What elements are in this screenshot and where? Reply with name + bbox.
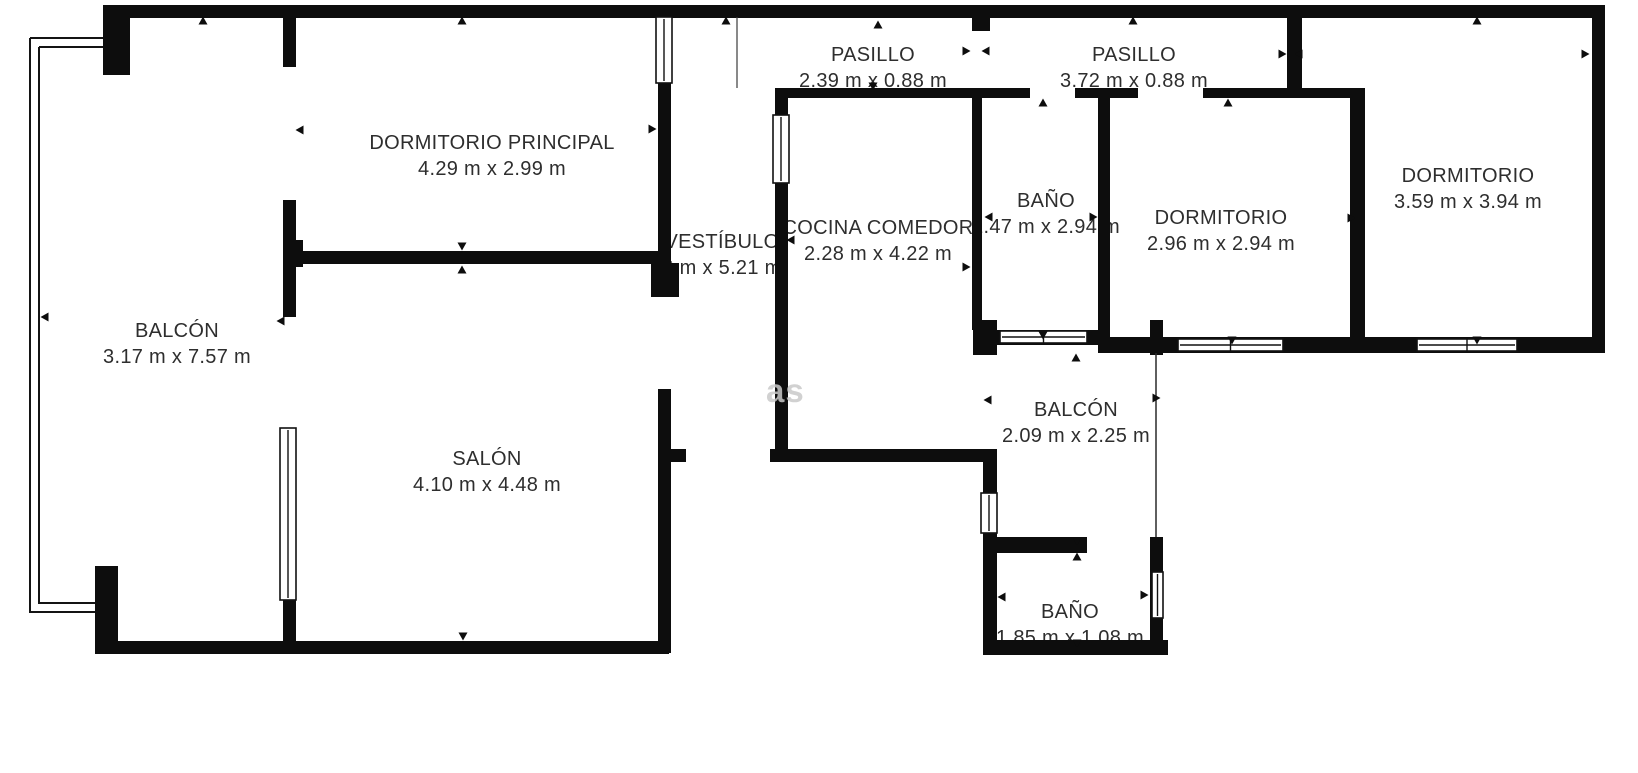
room-dims: 3.59 m x 3.94 m — [1394, 189, 1542, 215]
room-label-dormitorio-principal: DORMITORIO PRINCIPAL 4.29 m x 2.99 m — [369, 130, 614, 182]
room-name: DORMITORIO PRINCIPAL — [369, 130, 614, 156]
watermark: as — [766, 372, 805, 410]
room-dims: 3.72 m x 0.88 m — [1060, 68, 1208, 94]
dimension-arrows — [41, 17, 1590, 648]
room-label-salon: SALÓN 4.10 m x 4.48 m — [413, 446, 561, 498]
room-name: DORMITORIO — [1147, 205, 1295, 231]
floor-plan-graphic — [0, 0, 1638, 773]
room-label-balcon-central: BALCÓN 2.09 m x 2.25 m — [1002, 397, 1150, 449]
room-dims: 4.29 m x 2.99 m — [369, 156, 614, 182]
room-label-dormitorio-2: DORMITORIO 2.96 m x 2.94 m — [1147, 205, 1295, 257]
floor-plan: DORMITORIO PRINCIPAL 4.29 m x 2.99 m BAL… — [0, 0, 1638, 773]
room-name: PASILLO — [799, 42, 947, 68]
room-dims: 3.17 m x 7.57 m — [103, 344, 251, 370]
room-name: PASILLO — [1060, 42, 1208, 68]
room-dims: 2.28 m x 4.22 m — [783, 241, 974, 267]
room-label-pasillo-2: PASILLO 3.72 m x 0.88 m — [1060, 42, 1208, 94]
room-label-bano-1: BAÑO 1.47 m x 2.94 m — [972, 188, 1120, 240]
room-name: SALÓN — [413, 446, 561, 472]
room-dims: 2.96 m x 2.94 m — [1147, 231, 1295, 257]
room-name: BALCÓN — [1002, 397, 1150, 423]
room-name: DORMITORIO — [1394, 163, 1542, 189]
room-label-vestibulo: VESTÍBULO 6 m x 5.21 m — [662, 229, 781, 281]
balcony-railing — [30, 17, 1156, 612]
room-dims: 1.47 m x 2.94 m — [972, 214, 1120, 240]
room-name: BALCÓN — [103, 318, 251, 344]
room-name: VESTÍBULO — [662, 229, 781, 255]
room-label-bano-2: BAÑO 1.85 m x 1.08 m — [996, 599, 1144, 651]
room-name: BAÑO — [996, 599, 1144, 625]
room-dims: 2.39 m x 0.88 m — [799, 68, 947, 94]
room-dims: 1.85 m x 1.08 m — [996, 625, 1144, 651]
room-label-balcon-izquierdo: BALCÓN 3.17 m x 7.57 m — [103, 318, 251, 370]
room-dims: 2.09 m x 2.25 m — [1002, 423, 1150, 449]
room-label-cocina-comedor: COCINA COMEDOR 2.28 m x 4.22 m — [783, 215, 974, 267]
windows — [280, 17, 1517, 618]
room-name: COCINA COMEDOR — [783, 215, 974, 241]
walls — [95, 5, 1605, 655]
room-label-dormitorio-3: DORMITORIO 3.59 m x 3.94 m — [1394, 163, 1542, 215]
room-label-pasillo-1: PASILLO 2.39 m x 0.88 m — [799, 42, 947, 94]
room-dims: 6 m x 5.21 m — [662, 255, 781, 281]
room-name: BAÑO — [972, 188, 1120, 214]
room-dims: 4.10 m x 4.48 m — [413, 472, 561, 498]
